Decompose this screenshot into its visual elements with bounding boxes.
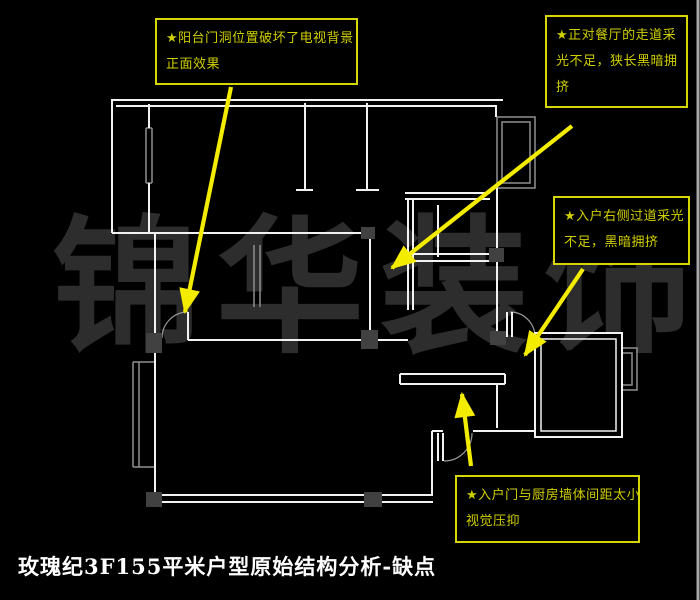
annotation-text: ★入户右侧过道采光 <box>564 204 679 230</box>
annotation-box-balcony-door: ★阳台门洞位置破坏了电视背景 正面效果 <box>155 18 358 85</box>
living-balcony-door-arc <box>162 312 188 338</box>
annotation-text: 视觉压抑 <box>466 509 629 535</box>
arrow-right-passage <box>525 269 583 355</box>
cad-screenshot: 锦华装饰 <box>0 0 700 600</box>
annotation-text: ★阳台门洞位置破坏了电视背景 <box>166 26 347 52</box>
page-title: 玫瑰纪3F155平米户型原始结构分析-缺点 <box>18 551 436 581</box>
arrow-entry-door <box>462 394 471 466</box>
annotation-box-entry-kitchen: ★入户门与厨房墙体间距太小 视觉压抑 <box>455 475 640 543</box>
annotation-arrows <box>185 87 583 466</box>
door-arcs <box>162 312 535 461</box>
columns <box>146 227 506 507</box>
annotation-text: 不足，黑暗拥挤 <box>564 230 679 256</box>
annotation-box-dining-corridor: ★正对餐厅的走道采 光不足，狭长黑暗拥 挤 <box>545 15 688 108</box>
annotation-text: ★入户门与厨房墙体间距太小 <box>466 483 629 509</box>
annotation-text: 挤 <box>556 75 677 101</box>
annotation-text: ★正对餐厅的走道采 <box>556 23 677 49</box>
annotation-text: 正面效果 <box>166 52 347 78</box>
annotation-text: 光不足，狭长黑暗拥 <box>556 49 677 75</box>
arrow-dining-corridor <box>392 126 572 268</box>
annotation-box-right-passage: ★入户右侧过道采光 不足，黑暗拥挤 <box>553 196 690 265</box>
arrow-balcony-door <box>185 87 231 312</box>
windows-and-balconies <box>133 117 637 467</box>
right-passage-door-arc <box>510 312 535 337</box>
